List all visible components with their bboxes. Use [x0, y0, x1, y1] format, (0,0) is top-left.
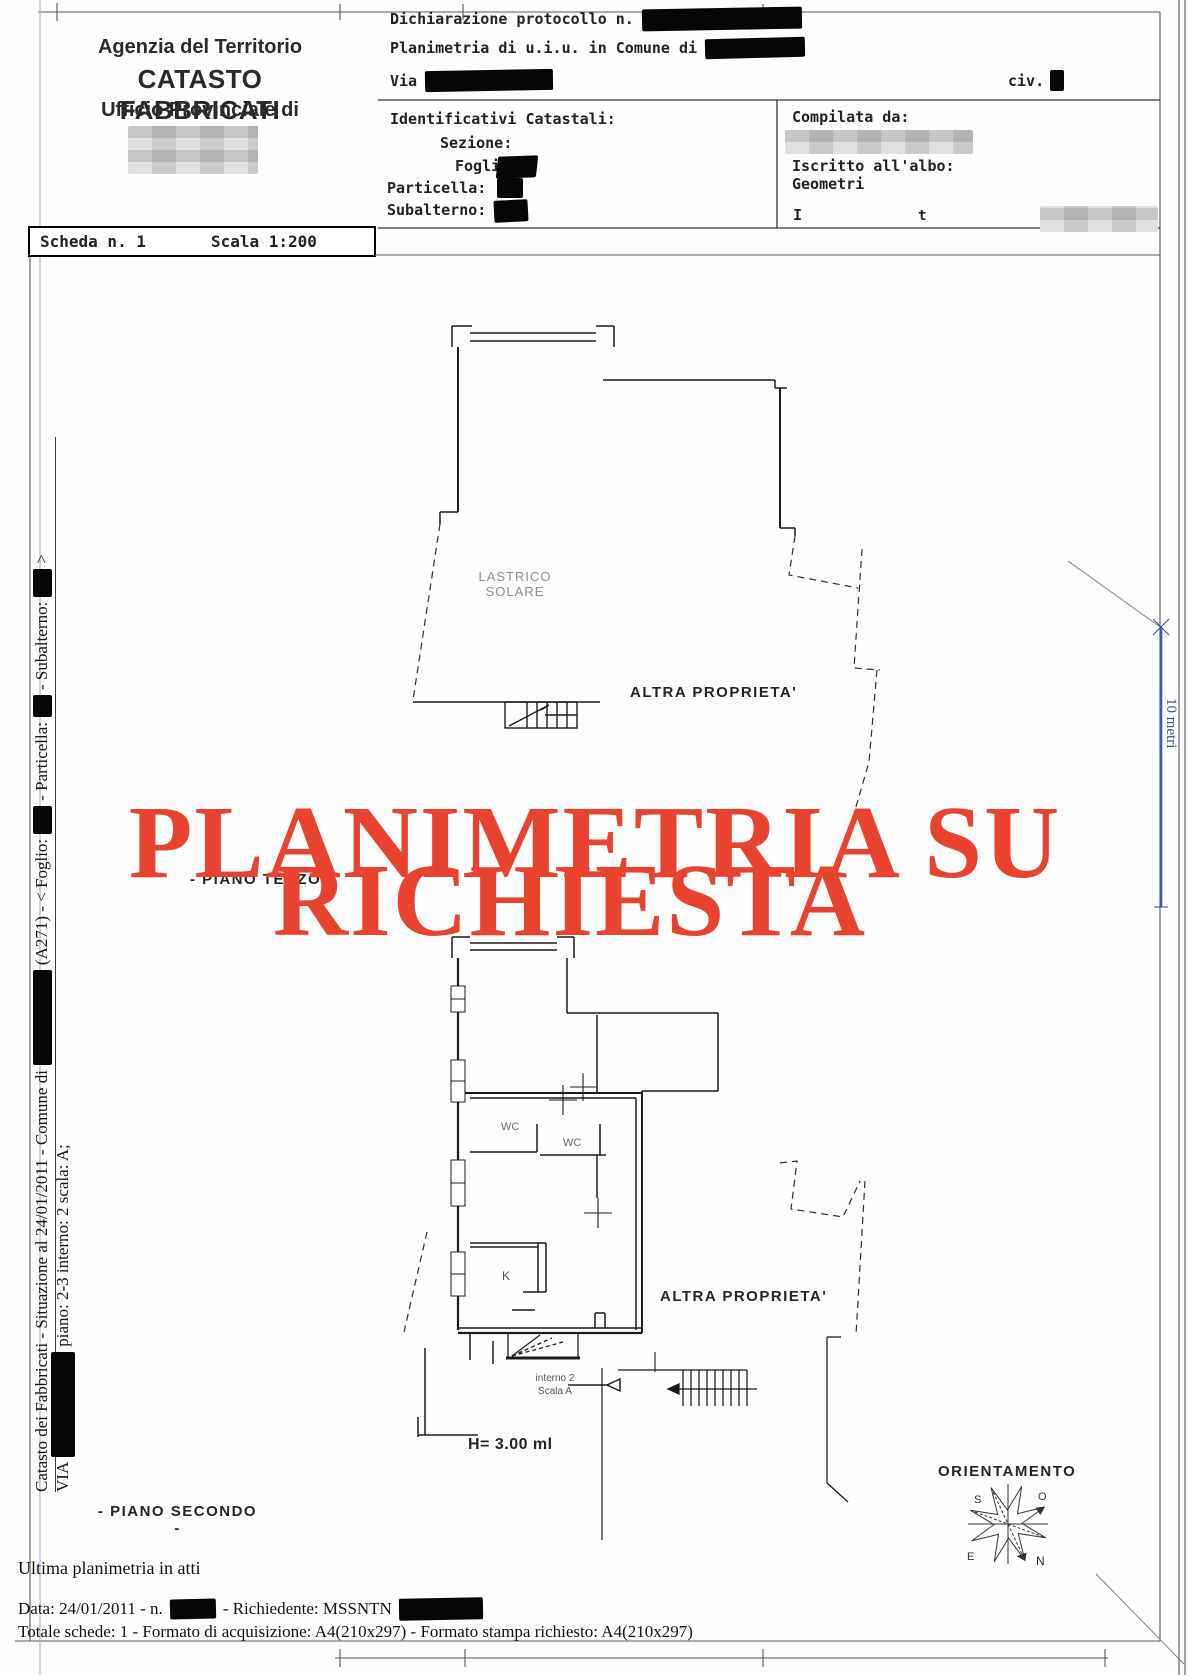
- via-label: Via: [390, 72, 417, 90]
- sidebar-comune-redaction: [33, 970, 52, 1065]
- declaration-label: Dichiarazione protocollo n.: [390, 10, 634, 28]
- office-title: Ufficio Provinciale di: [75, 99, 325, 122]
- boundary-dashed-lower: [404, 1161, 865, 1335]
- foglio-redaction: [496, 155, 538, 178]
- civ-label: civ.: [1008, 72, 1044, 90]
- via-row: Via: [390, 70, 553, 91]
- piano-terzo-walls: [413, 326, 795, 702]
- cadastral-document-page: S O E N Agenzia del Territorio CATASTO F…: [0, 0, 1188, 1675]
- watermark-line2: RICHIESTA: [0, 849, 1140, 953]
- sidebar-reference-line2: VIA piano: 2-3 interno: 2 scala: A;: [52, 987, 76, 1492]
- kitchen-label: K: [502, 1269, 510, 1283]
- sidebar-line1-text1: Catasto dei Fabbricati - Situazione al 2…: [32, 1070, 52, 1492]
- staircase-lower: [506, 1333, 580, 1358]
- data-number-redaction: [170, 1598, 217, 1619]
- compass-letter-n: N: [1036, 1554, 1045, 1568]
- via-redaction: [425, 69, 553, 92]
- agency-title: Agenzia del Territorio: [75, 36, 325, 59]
- subalterno-label: Subalterno:: [387, 201, 486, 219]
- sidebar-line1-text3: - Particella:: [32, 722, 52, 801]
- civ-redaction: [1050, 70, 1064, 91]
- altra-proprieta-top-label: ALTRA PROPRIETA': [630, 684, 797, 701]
- declaration-row: Dichiarazione protocollo n.: [390, 8, 802, 30]
- wc1-label: WC: [501, 1121, 519, 1133]
- compass-letter-o: O: [1038, 1491, 1047, 1503]
- compilata-label: Compilata da:: [792, 108, 909, 126]
- compass-rose: S O E N: [967, 1484, 1048, 1568]
- particella-redaction: [497, 178, 523, 198]
- compilata-name-blur: [785, 130, 973, 154]
- comune-redaction: [705, 37, 805, 60]
- firma-fragment-right: t: [918, 208, 926, 224]
- compass-letter-e: E: [967, 1551, 974, 1563]
- staircase-upper: [505, 702, 577, 728]
- piano-secondo-walls: [418, 937, 718, 1540]
- sidebar-line1-text5: >: [32, 554, 52, 564]
- boundary-solid-lower-right: [827, 1337, 848, 1502]
- protocol-redaction: [642, 7, 802, 32]
- interno-label: interno 2: [520, 1373, 590, 1384]
- scheda-number: Scheda n. 1: [40, 232, 146, 251]
- office-name-blur: [128, 126, 258, 174]
- albo-label: Iscritto all'albo:: [792, 157, 955, 175]
- sidebar-subalterno-redaction: [33, 569, 52, 597]
- orientamento-label: ORIENTAMENTO: [938, 1463, 1076, 1480]
- scalebar-label: 10 metri: [1162, 698, 1179, 748]
- albo-value: Geometri: [792, 175, 864, 193]
- sidebar-line2-text2: piano: 2-3 interno: 2 scala: A;: [53, 1144, 73, 1347]
- lastrico-solare-label: LASTRICO SOLARE: [450, 569, 580, 599]
- sidebar-via-redaction: [51, 1352, 75, 1457]
- civ-row: civ.: [1008, 70, 1064, 91]
- scheda-scale: Scala 1:200: [211, 232, 317, 251]
- door-marks: [549, 1073, 655, 1372]
- sidebar-line2-text1: VIA: [53, 1462, 73, 1492]
- staircase-external: [618, 1370, 757, 1406]
- data-text1: Data: 24/01/2011 - n.: [18, 1599, 163, 1619]
- sidebar-particella-redaction: [33, 695, 52, 717]
- wc2-label: WC: [563, 1137, 581, 1149]
- planimetria-label: Planimetria di u.i.u. in Comune di: [390, 39, 697, 57]
- compass-letter-s: S: [974, 1494, 981, 1506]
- totale-row: Totale schede: 1 - Formato di acquisizio…: [18, 1622, 693, 1642]
- data-row: Data: 24/01/2011 - n. - Richiedente: MSS…: [18, 1598, 483, 1620]
- data-text2: - Richiedente: MSSNTN: [223, 1599, 392, 1619]
- planimetria-row: Planimetria di u.i.u. in Comune di: [390, 38, 805, 58]
- sidebar-line1-text4: - Subalterno:: [32, 602, 52, 690]
- particella-label: Particella:: [387, 179, 486, 197]
- altra-proprieta-bottom-label: ALTRA PROPRIETA': [660, 1288, 827, 1305]
- height-note: H= 3.00 ml: [468, 1436, 553, 1454]
- piano-secondo-label: - PIANO SECONDO -: [95, 1503, 260, 1537]
- sezione-label: Sezione:: [440, 134, 512, 152]
- identificativi-title: Identificativi Catastali:: [390, 110, 616, 128]
- richiedente-redaction: [399, 1597, 483, 1620]
- scala-a-label: Scala A: [520, 1386, 590, 1397]
- subalterno-redaction: [493, 199, 528, 223]
- firma-fragment-left: I: [793, 206, 802, 224]
- scheda-box: Scheda n. 1 Scala 1:200: [28, 226, 376, 257]
- ultima-note: Ultima planimetria in atti: [18, 1558, 200, 1579]
- firma-blur: [1040, 206, 1158, 232]
